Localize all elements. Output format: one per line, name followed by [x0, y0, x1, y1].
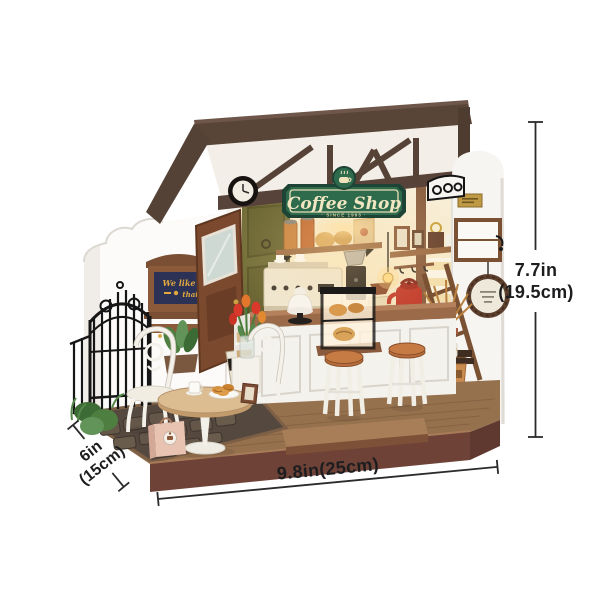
sign-glow — [310, 216, 378, 240]
pastry-display-case — [316, 287, 382, 356]
shopping-bag — [148, 418, 186, 459]
sign-title: Coffee Shop — [287, 194, 401, 214]
pastry — [348, 303, 364, 313]
wall-clock — [228, 176, 258, 206]
dollhouse-illustration: We like that! — [0, 0, 600, 600]
height-label-cm: (19.5cm) — [498, 282, 573, 302]
product-image-canvas: We like that! — [0, 0, 600, 600]
height-dimension: 7.7in (19.5cm) — [498, 122, 573, 437]
pastry — [329, 304, 347, 316]
height-label-in: 7.7in — [515, 260, 558, 280]
board-line1: We like — [163, 278, 196, 288]
table-frame — [241, 383, 258, 403]
iron-scroll-panel — [428, 176, 464, 200]
roof-left-eave — [146, 124, 210, 224]
